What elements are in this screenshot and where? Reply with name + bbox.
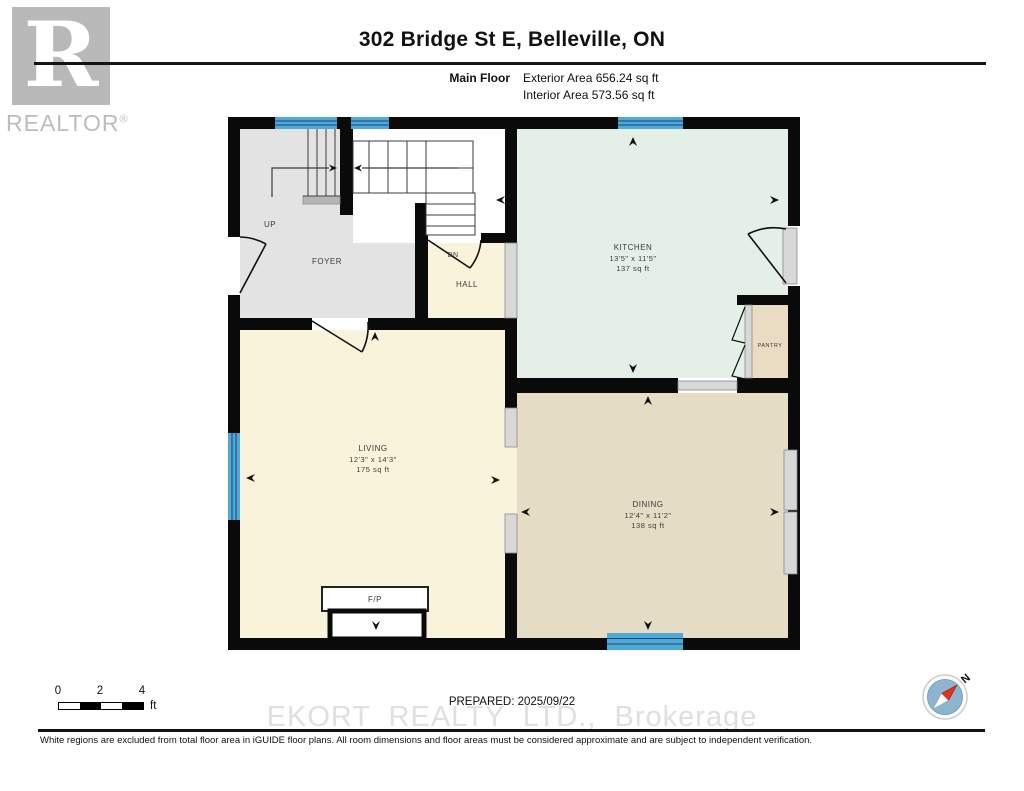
kitchen-area: 137 sq ft — [616, 264, 650, 273]
foyer-fill — [240, 129, 340, 318]
floor-plan-page: R REALTOR® 302 Bridge St E, Belleville, … — [0, 0, 1024, 791]
wall-kitchen-dining-b — [737, 378, 788, 393]
wall-living-dining-b — [505, 553, 517, 638]
living-dining-pass-fill — [505, 447, 517, 514]
living-dining-jamb-top — [505, 408, 517, 447]
floor-plan: UP FOYER DN HALL KITCHEN 13'5" x 11'5" 1… — [0, 0, 1024, 791]
wall-foyer-living-a — [240, 318, 312, 330]
kitchen-label: KITCHEN — [614, 243, 653, 252]
foyer-label: FOYER — [312, 257, 342, 266]
window-top-1 — [275, 117, 337, 129]
disclaimer-text: White regions are excluded from total fl… — [40, 735, 812, 746]
stairs-down-box — [353, 141, 473, 193]
wall-kitchen-dining-a — [517, 378, 678, 393]
stairs-down-label: DN — [447, 252, 458, 259]
stair-landing-strip — [303, 196, 340, 204]
dining-area: 138 sq ft — [631, 521, 665, 530]
hall-kitchen-opening — [505, 243, 517, 318]
wall-stair-divider — [340, 117, 353, 215]
dining-label: DINING — [633, 500, 664, 509]
living-dims: 12'3" x 14'3" — [349, 455, 397, 464]
window-living-left — [228, 433, 240, 520]
entry-door-opening — [228, 237, 240, 295]
stairs-up-label: UP — [264, 220, 276, 229]
stairs-winder-box — [426, 193, 475, 235]
wall-bottom — [228, 638, 800, 650]
kitchen-dims: 13'5" x 11'5" — [609, 254, 656, 263]
window-dining-bottom — [607, 633, 683, 650]
window-kitchen-top — [618, 117, 683, 129]
pantry-label: PANTRY — [758, 343, 783, 349]
wall-hall-top — [481, 233, 505, 243]
hall-label: HALL — [456, 280, 478, 289]
pantry-door-track — [745, 305, 752, 378]
dining-right-window-1 — [784, 450, 797, 510]
wall-kitchen-left — [505, 117, 517, 243]
wall-living-dining-a — [505, 330, 517, 408]
wall-pantry-top — [737, 295, 788, 305]
wall-foyer-living-b — [368, 318, 517, 330]
window-top-2 — [351, 117, 389, 129]
living-dining-jamb-bottom — [505, 514, 517, 553]
dining-dims: 12'4" x 11'2" — [624, 511, 671, 520]
living-label: LIVING — [358, 444, 387, 453]
footer-rule — [38, 729, 985, 732]
living-area: 175 sq ft — [356, 465, 390, 474]
kitchen-dining-opening — [678, 381, 737, 390]
wall-left — [228, 117, 240, 650]
fireplace-label: F/P — [368, 595, 382, 604]
kitchen-door-leaf — [783, 228, 797, 284]
dining-right-window-2 — [784, 512, 797, 574]
